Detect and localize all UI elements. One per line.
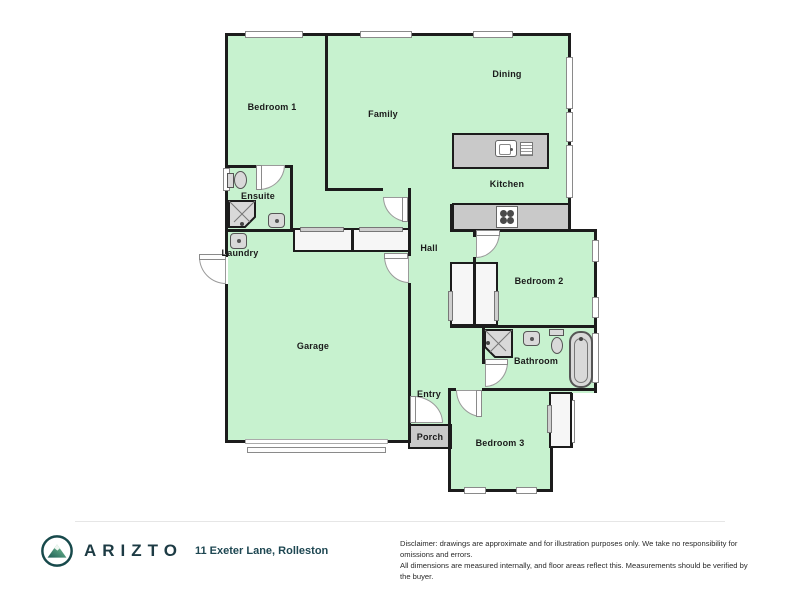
door-leaf-icon bbox=[384, 253, 408, 259]
room-label-laundry: Laundry bbox=[222, 248, 259, 258]
window bbox=[516, 487, 537, 494]
basin-icon bbox=[523, 331, 540, 346]
window bbox=[566, 112, 573, 142]
wall bbox=[225, 33, 228, 443]
room-label-entry: Entry bbox=[417, 389, 441, 399]
door-leaf-icon bbox=[485, 359, 508, 365]
window bbox=[592, 240, 599, 262]
room-label-bathroom: Bathroom bbox=[514, 356, 558, 366]
disclaimer-line2: All dimensions are measured internally, … bbox=[400, 560, 758, 582]
window bbox=[245, 31, 303, 38]
door-leaf-icon bbox=[402, 197, 408, 222]
disclaimer-text: Disclaimer: drawings are approximate and… bbox=[400, 538, 758, 582]
sliding-door-icon bbox=[448, 291, 453, 321]
wall bbox=[290, 165, 293, 232]
basin-icon bbox=[268, 213, 285, 228]
room-label-hall: Hall bbox=[420, 243, 437, 253]
sliding-door-icon bbox=[547, 405, 552, 433]
room-label-bedroom2: Bedroom 2 bbox=[515, 276, 564, 286]
window bbox=[566, 57, 573, 109]
footer-divider bbox=[75, 521, 725, 522]
sliding-door-icon bbox=[300, 227, 344, 232]
drainer-icon bbox=[520, 142, 533, 156]
window bbox=[360, 31, 412, 38]
shower-icon bbox=[484, 329, 513, 358]
sliding-door-icon bbox=[494, 291, 499, 321]
laundry-tub-icon bbox=[230, 233, 247, 249]
cooktop-icon bbox=[496, 206, 518, 228]
bedroom3-wardrobe bbox=[549, 392, 572, 448]
window bbox=[592, 297, 599, 318]
linen-closet bbox=[450, 262, 475, 326]
room-label-porch: Porch bbox=[417, 432, 444, 442]
wall bbox=[550, 445, 553, 492]
room-label-family: Family bbox=[368, 109, 398, 119]
shower-icon bbox=[228, 200, 256, 228]
wall bbox=[325, 188, 383, 191]
window bbox=[464, 487, 486, 494]
room-label-dining: Dining bbox=[492, 69, 521, 79]
toilet-icon bbox=[234, 171, 247, 189]
wall bbox=[450, 204, 453, 232]
arizto-logo-icon bbox=[40, 534, 74, 568]
disclaimer-line1: Disclaimer: drawings are approximate and… bbox=[400, 538, 758, 560]
door-leaf-icon bbox=[476, 230, 500, 236]
door-leaf-icon bbox=[410, 396, 416, 423]
window bbox=[566, 145, 573, 198]
toilet-icon bbox=[227, 173, 234, 188]
wall bbox=[225, 229, 293, 232]
floorplan: Bedroom 1 Family Dining Kitchen Ensuite … bbox=[0, 0, 800, 600]
listing-address: 11 Exeter Lane, Rolleston bbox=[195, 545, 328, 557]
wall bbox=[225, 165, 259, 168]
garage-door-opening bbox=[245, 439, 388, 444]
laundry-exterior-door-icon bbox=[199, 257, 226, 284]
wall bbox=[448, 388, 451, 492]
wall bbox=[325, 33, 328, 191]
garage-door-icon bbox=[247, 447, 386, 453]
room-label-bedroom1: Bedroom 1 bbox=[248, 102, 297, 112]
door-leaf-icon bbox=[256, 165, 262, 190]
room-label-ensuite: Ensuite bbox=[241, 191, 275, 201]
toilet-icon bbox=[549, 329, 564, 336]
wall bbox=[482, 388, 597, 391]
sliding-door-icon bbox=[359, 227, 403, 232]
room-label-bedroom3: Bedroom 3 bbox=[476, 438, 525, 448]
kitchen-sink-icon bbox=[495, 140, 517, 157]
bathtub-icon bbox=[569, 331, 593, 388]
door-leaf-icon bbox=[476, 390, 482, 417]
window bbox=[592, 333, 599, 383]
toilet-icon bbox=[551, 337, 563, 354]
room-label-kitchen: Kitchen bbox=[490, 179, 524, 189]
brand-name: ARIZTO bbox=[84, 541, 183, 561]
window bbox=[473, 31, 513, 38]
room-label-garage: Garage bbox=[297, 341, 329, 351]
